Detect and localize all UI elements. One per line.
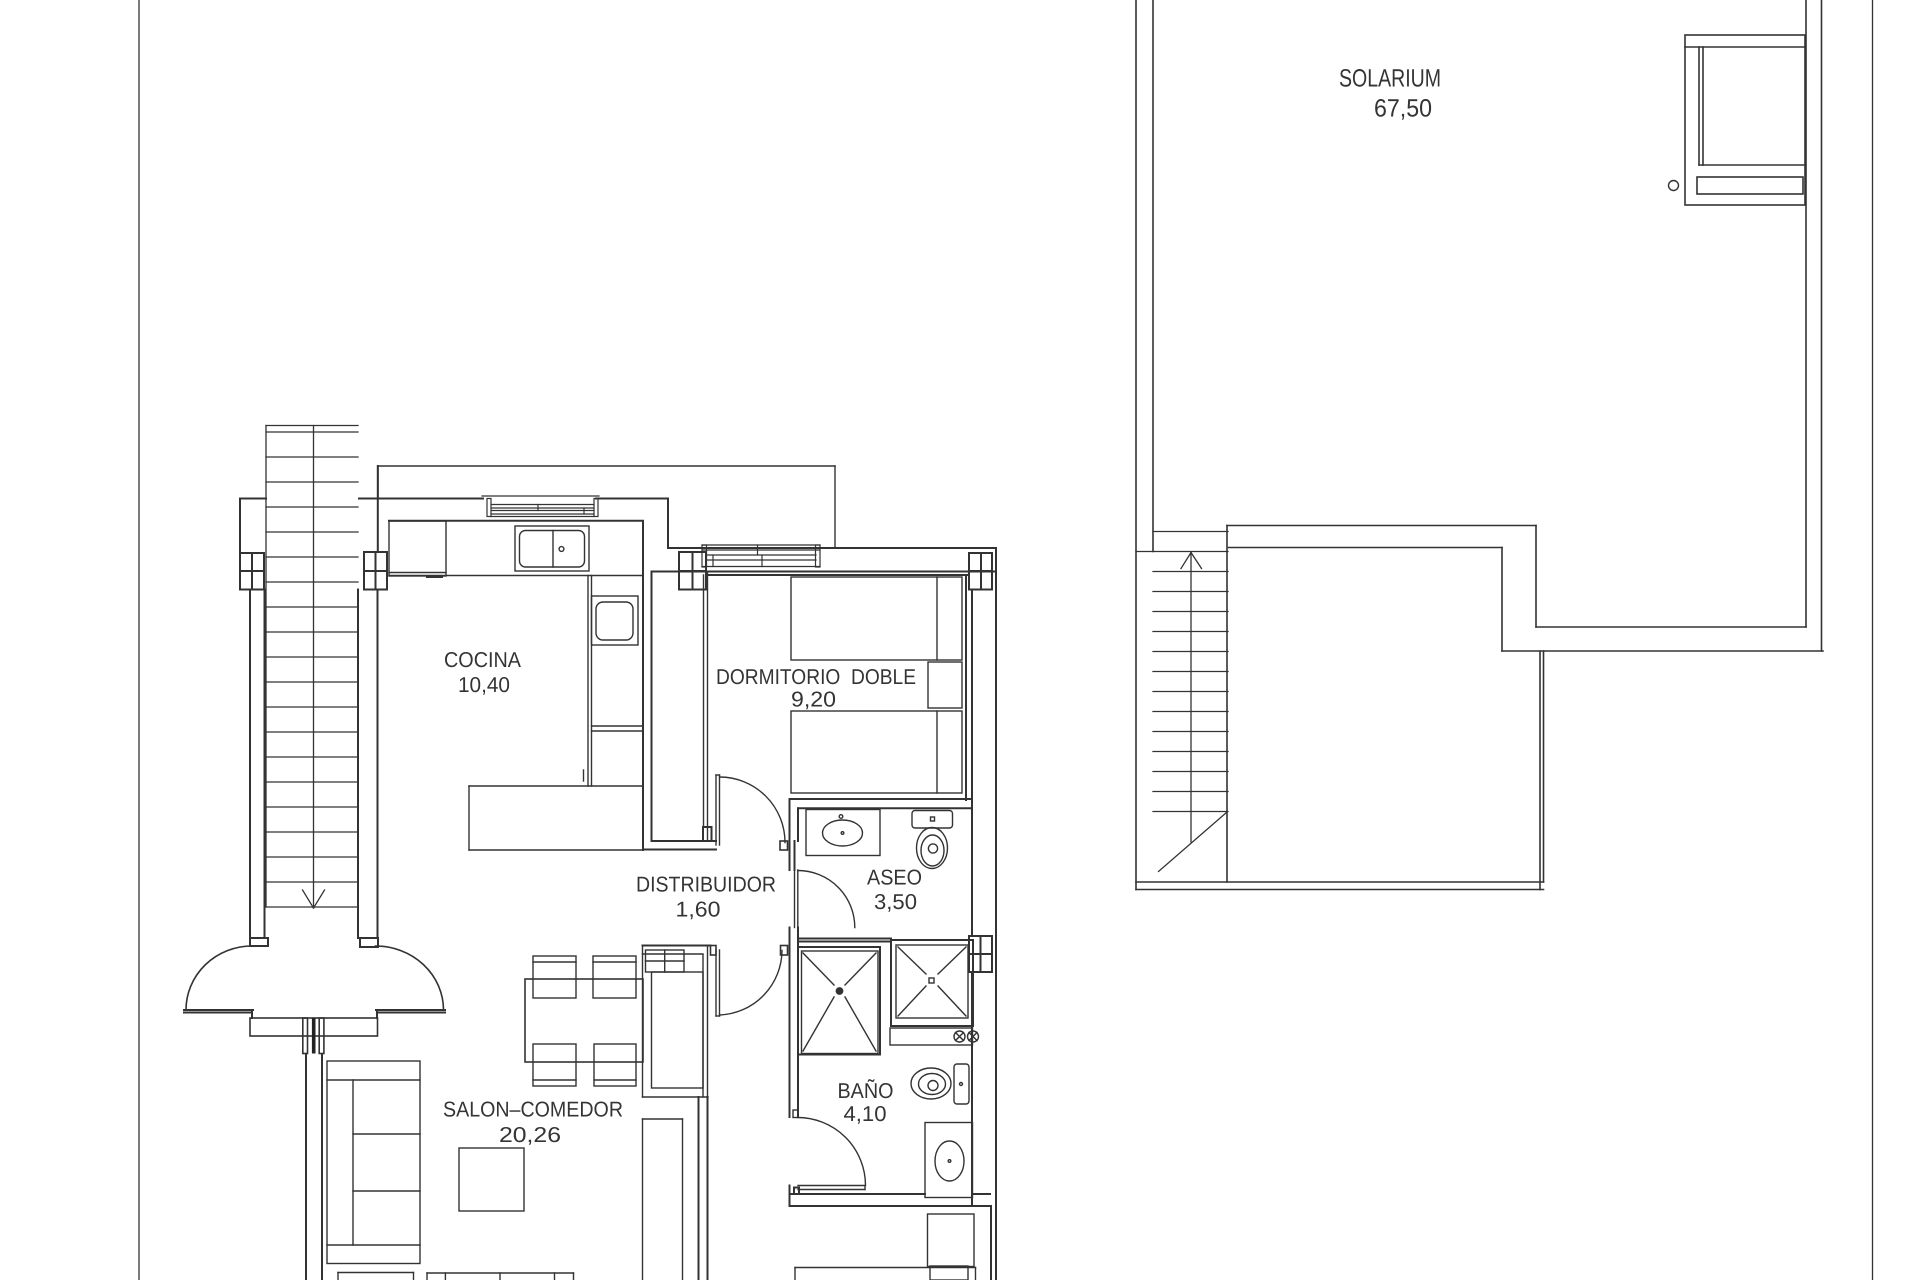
svg-text:67,50: 67,50 (1374, 95, 1432, 123)
svg-text:3,50: 3,50 (874, 890, 917, 914)
svg-text:SALON–COMEDOR: SALON–COMEDOR (443, 1098, 623, 1122)
svg-text:ASEO: ASEO (867, 866, 922, 890)
svg-text:COCINA: COCINA (444, 648, 522, 672)
svg-text:10,40: 10,40 (458, 673, 510, 697)
svg-text:4,10: 4,10 (844, 1102, 887, 1126)
svg-text:DISTRIBUIDOR: DISTRIBUIDOR (636, 873, 776, 897)
svg-text:9,20: 9,20 (791, 688, 836, 712)
svg-text:1,60: 1,60 (676, 898, 721, 922)
svg-text:SOLARIUM: SOLARIUM (1339, 65, 1441, 93)
svg-text:BAÑO: BAÑO (838, 1079, 894, 1103)
svg-text:DORMITORIO DOBLE: DORMITORIO DOBLE (716, 665, 916, 689)
svg-text:20,26: 20,26 (499, 1123, 561, 1147)
